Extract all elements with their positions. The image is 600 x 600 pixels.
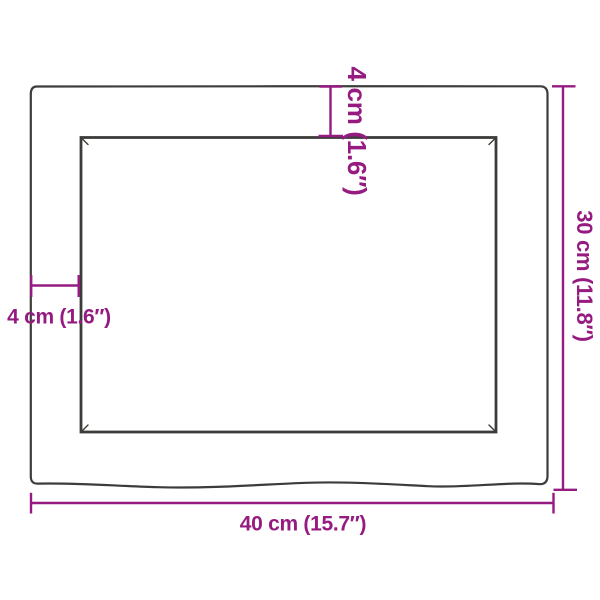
width-dimension-line bbox=[31, 493, 554, 514]
thickness-dimension-label-top: 4 cm (1.6″) bbox=[344, 66, 370, 195]
width-dimension-label: 40 cm (15.7″) bbox=[240, 514, 366, 535]
diagram-artwork bbox=[0, 0, 600, 600]
inner-corner-chamfers bbox=[82, 138, 496, 432]
dimension-diagram: 4 cm (1.6″) 4 cm (1.6″) 30 cm (11.8″) 40… bbox=[0, 0, 600, 600]
height-dimension-label: 30 cm (11.8″) bbox=[573, 210, 595, 341]
thickness-dimension-line-left bbox=[31, 275, 79, 297]
thickness-dimension-label-left: 4 cm (1.6″) bbox=[7, 307, 111, 328]
board-outer-edge bbox=[31, 86, 548, 487]
thickness-dimension-line-top bbox=[319, 86, 344, 137]
board-inner-edge bbox=[81, 138, 496, 433]
